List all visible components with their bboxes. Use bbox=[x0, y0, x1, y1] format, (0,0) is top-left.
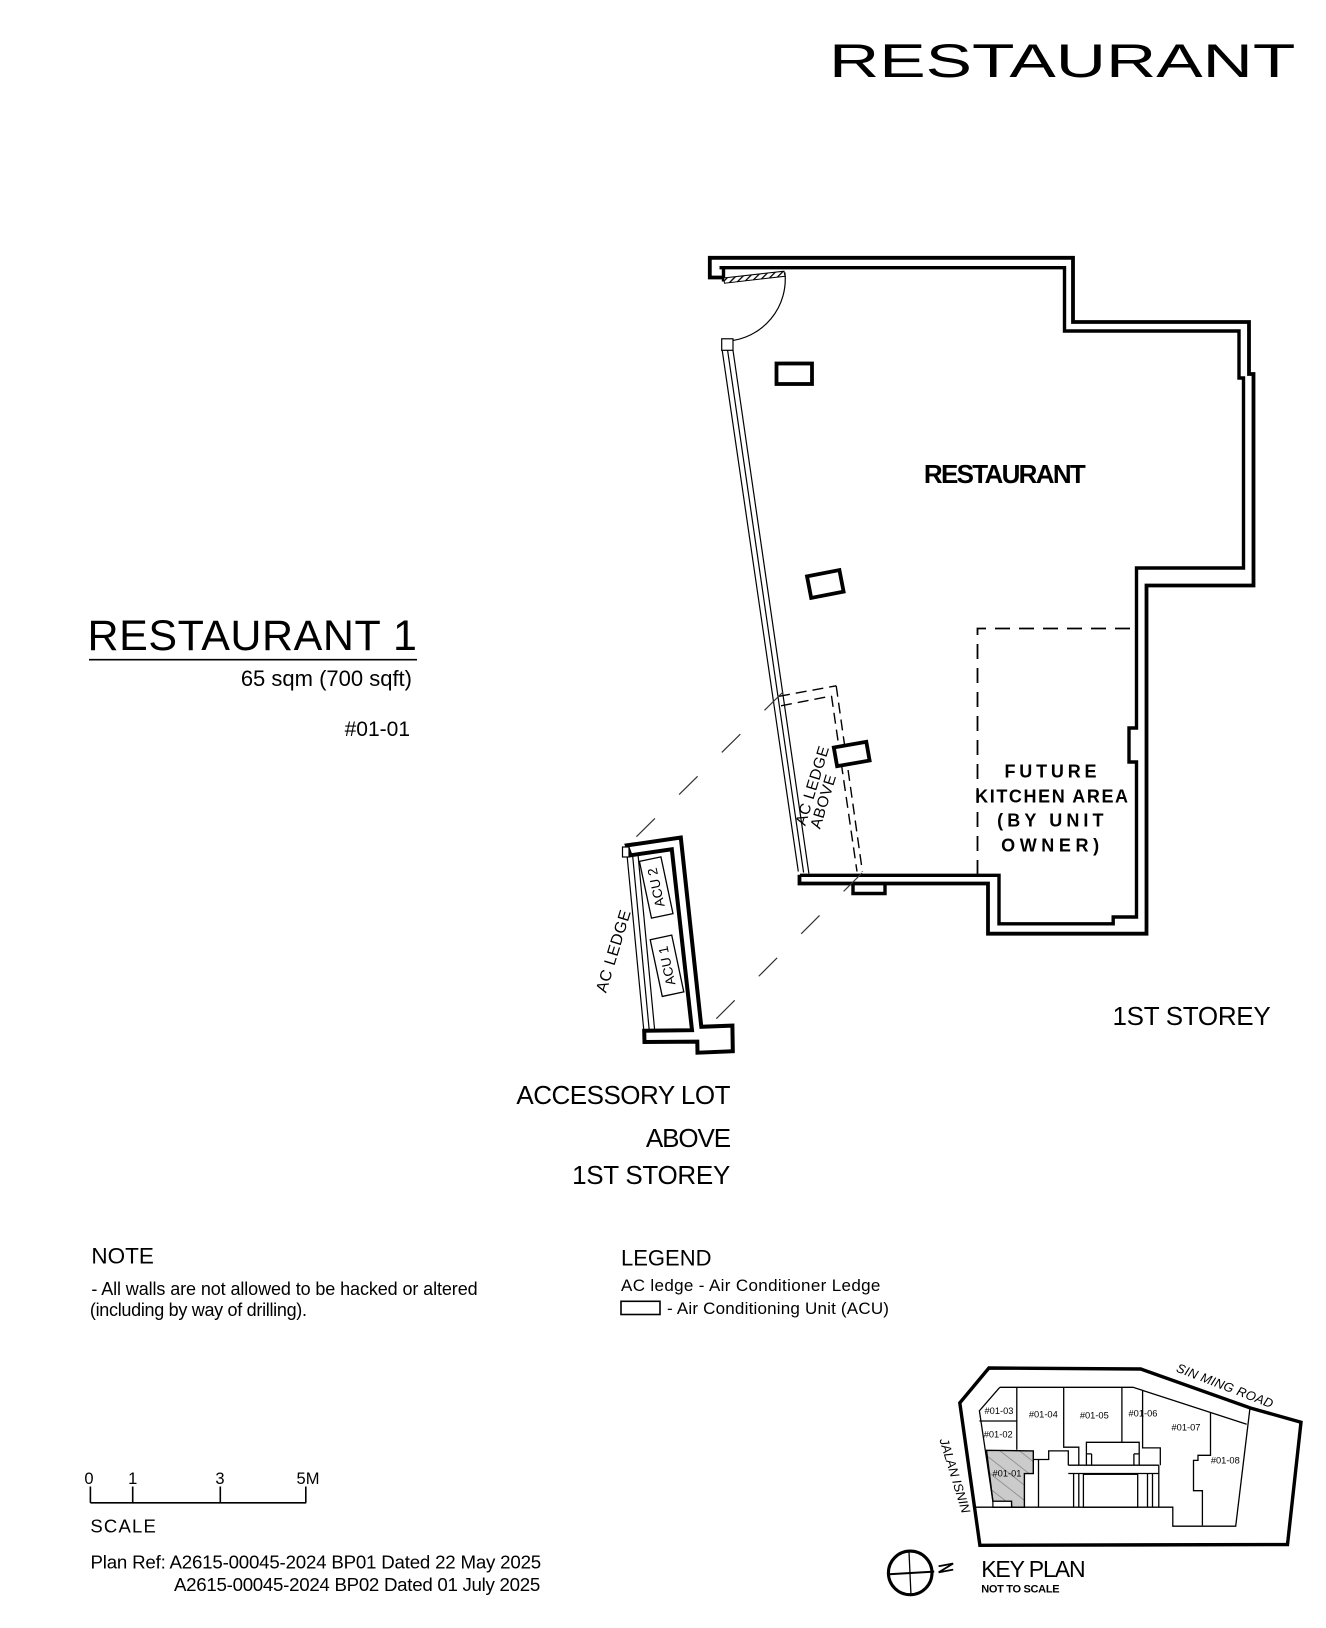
svg-text:#01-02: #01-02 bbox=[984, 1430, 1013, 1440]
svg-text:1: 1 bbox=[128, 1470, 137, 1488]
svg-text:NOT TO SCALE: NOT TO SCALE bbox=[981, 1583, 1059, 1595]
svg-text:FUTURE: FUTURE bbox=[1005, 761, 1101, 781]
svg-text:KITCHEN AREA: KITCHEN AREA bbox=[975, 787, 1130, 807]
svg-text:NOTE: NOTE bbox=[91, 1244, 154, 1269]
svg-text:#01-06: #01-06 bbox=[1129, 1409, 1158, 1419]
svg-text:RESTAURANT: RESTAURANT bbox=[924, 459, 1086, 489]
svg-text:#01-01: #01-01 bbox=[993, 1469, 1022, 1479]
svg-text:1ST STOREY: 1ST STOREY bbox=[1113, 1001, 1271, 1031]
svg-text:#01-03: #01-03 bbox=[985, 1406, 1014, 1416]
svg-text:ABOVE: ABOVE bbox=[646, 1123, 731, 1153]
svg-text:Plan Ref: A2615-00045-2024 BP0: Plan Ref: A2615-00045-2024 BP01 Dated 22… bbox=[91, 1552, 541, 1573]
svg-text:OWNER): OWNER) bbox=[1001, 835, 1104, 855]
svg-text:65 sqm (700 sqft): 65 sqm (700 sqft) bbox=[241, 666, 412, 691]
svg-text:RESTAURANT 1: RESTAURANT 1 bbox=[88, 612, 418, 660]
svg-text:3: 3 bbox=[215, 1470, 224, 1488]
svg-text:- All walls are not allowed t: - All walls are not allowed to be hacked… bbox=[91, 1279, 477, 1299]
svg-text:#01-01: #01-01 bbox=[345, 718, 410, 741]
svg-text:#01-08: #01-08 bbox=[1211, 1456, 1240, 1466]
svg-text:#01-04: #01-04 bbox=[1029, 1410, 1058, 1420]
svg-text:LEGEND: LEGEND bbox=[621, 1246, 711, 1271]
svg-text:(including by way of drilling): (including by way of drilling). bbox=[90, 1300, 307, 1320]
svg-text:KEY PLAN: KEY PLAN bbox=[981, 1556, 1084, 1582]
svg-text:(BY UNIT: (BY UNIT bbox=[997, 811, 1107, 831]
svg-text:- Air Conditioning Unit (ACU): - Air Conditioning Unit (ACU) bbox=[667, 1299, 889, 1318]
svg-text:RESTAURANT: RESTAURANT bbox=[829, 34, 1295, 87]
svg-text:1ST STOREY: 1ST STOREY bbox=[572, 1160, 730, 1190]
svg-text:AC ledge - Air Conditioner L: AC ledge - Air Conditioner Ledge bbox=[621, 1276, 881, 1295]
svg-text:SCALE: SCALE bbox=[90, 1516, 157, 1537]
svg-text:#01-05: #01-05 bbox=[1080, 1411, 1109, 1421]
svg-text:5M: 5M bbox=[297, 1470, 320, 1488]
svg-text:ACCESSORY LOT: ACCESSORY LOT bbox=[516, 1080, 730, 1110]
svg-text:#01-07: #01-07 bbox=[1172, 1422, 1201, 1432]
svg-text:A2615-00045-2024 BP02 Dated 01: A2615-00045-2024 BP02 Dated 01 July 2025 bbox=[174, 1574, 540, 1595]
svg-text:0: 0 bbox=[84, 1470, 93, 1488]
